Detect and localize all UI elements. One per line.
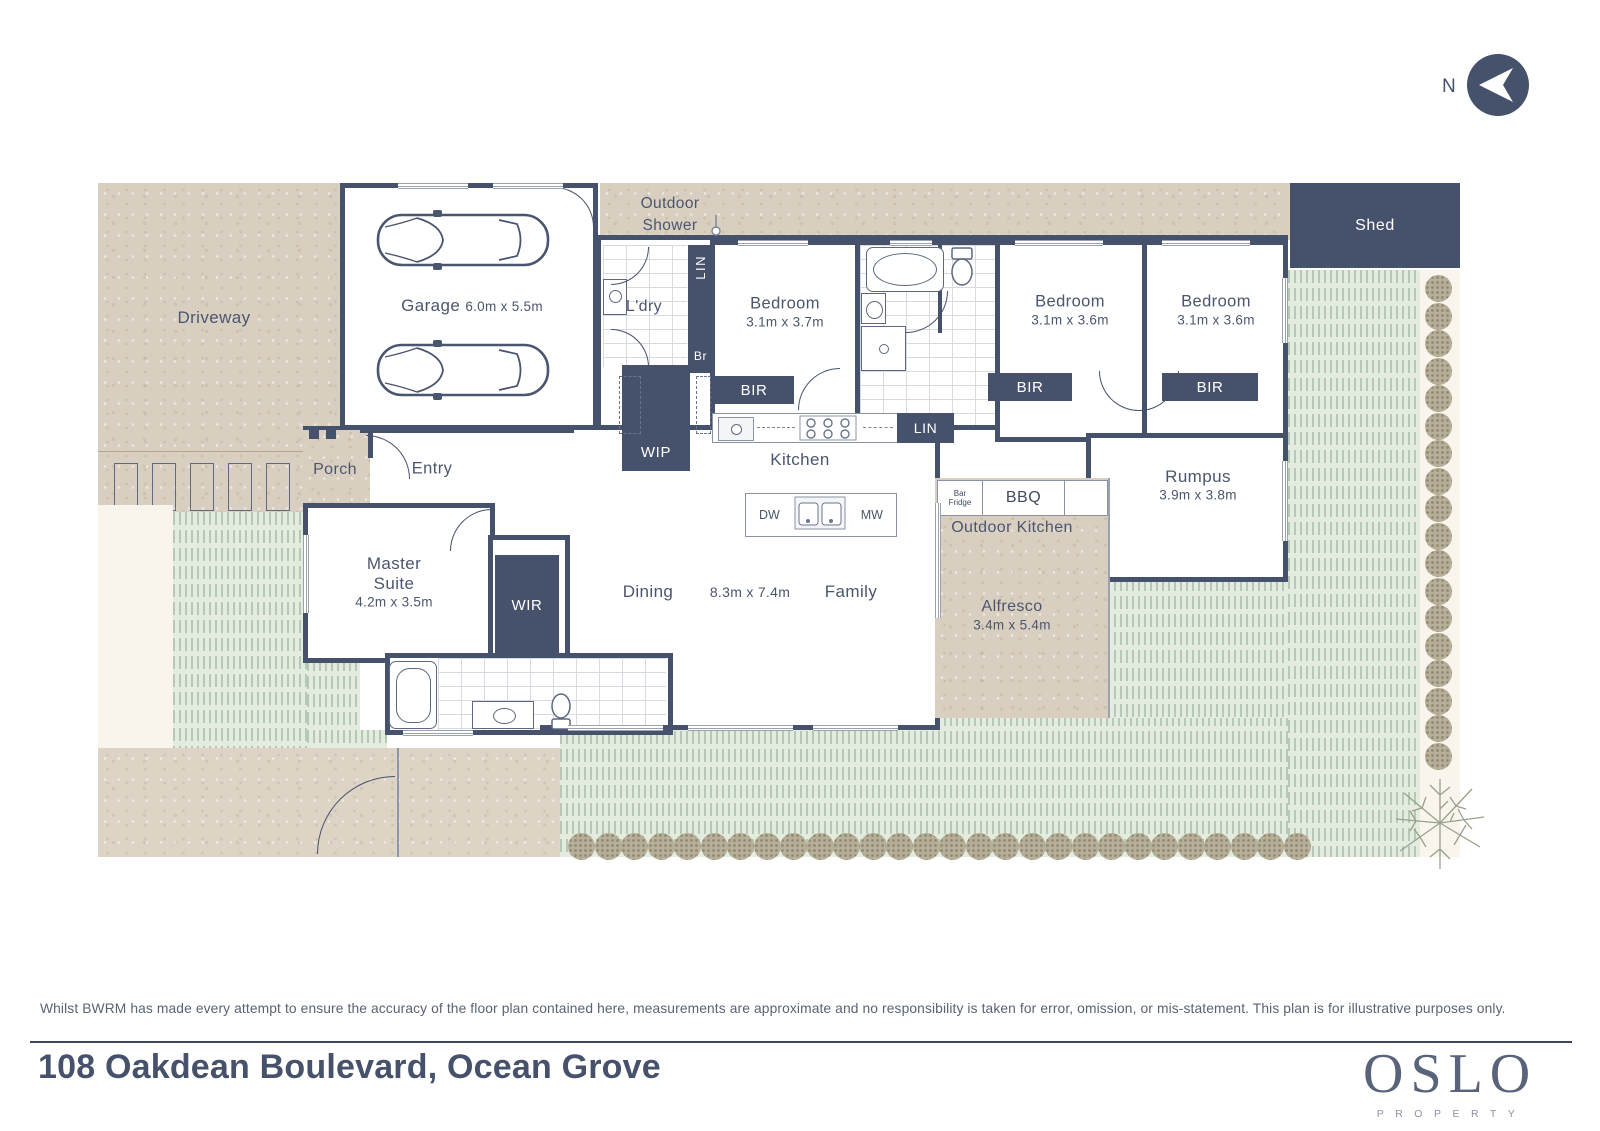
outdoor-shower-label-2: Shower [643,217,698,235]
hedge-shrub [727,833,754,860]
bedroom1-dims: 3.1m x 3.7m [746,315,824,330]
left-garden-bed [98,505,173,750]
living-dims-label: 8.3m x 7.4m [710,584,790,600]
hedge-shrub [1425,550,1452,577]
outdoor-kitchen-label: Outdoor Kitchen [951,519,1073,537]
bbq-bench: Bar Fridge BBQ [937,480,1108,516]
linen-label: LIN [693,255,708,280]
master-window [303,535,309,613]
bedroom3-dims: 3.1m x 3.6m [1177,313,1255,328]
bir1-label: BIR [741,382,768,399]
hedge-shrub [1425,330,1452,357]
entry-top-wall [360,428,574,433]
bedroom2-room [995,240,1147,442]
patio-fence-line [397,748,399,857]
garage-name: Garage [401,296,460,315]
hedge-shrub [1425,578,1452,605]
bedroom2-window [1015,240,1103,246]
footer-divider [30,1041,1572,1043]
bar-fridge-label-1: Bar [954,489,966,498]
hedge-shrub [1425,468,1452,495]
wir-label: WIR [512,597,543,614]
alfresco-label: Alfresco [982,598,1043,616]
kitchen-linen-block: LIN [897,413,954,443]
bedroom3-window [1162,240,1250,246]
garage-window-2 [493,183,563,189]
hedge-shrub [1425,633,1452,660]
porch-label: Porch [313,461,357,479]
ensuite-bath-icon [389,661,437,729]
alfresco-edge-line [1108,478,1110,718]
master-dims: 4.2m x 3.5m [355,595,433,610]
hedge-shrub [886,833,913,860]
dishwasher-label: DW [759,508,780,522]
hedge-shrub [1425,358,1452,385]
paver [152,463,176,511]
living-window-3 [813,725,898,731]
bathtub-icon [866,247,944,292]
bir3-label: BIR [1197,379,1224,396]
car-icon-bottom [375,339,551,406]
outdoor-shower-path [600,183,1290,240]
hedge-shrub [1231,833,1258,860]
hedge-shrub [1425,715,1452,742]
bir2-block: BIR [988,373,1072,401]
hedge-shrub [1425,688,1452,715]
ensuite-vanity-icon [472,701,534,729]
wir-block: WIR [495,555,559,655]
toilet-icon [947,246,977,293]
hedge-shrub [1425,495,1452,522]
kitchen-label: Kitchen [770,450,830,470]
side-yard-lawn [1108,578,1288,718]
alfresco-slider-door [935,503,941,618]
north-label: N [1442,76,1456,98]
rumpus-dims: 3.9m x 3.8m [1159,488,1237,503]
hedge-shrub [1425,660,1452,687]
outdoor-shower-label-1: Outdoor [641,195,700,213]
hedge-shrub [754,833,781,860]
hedge-shrub [1151,833,1178,860]
alfresco-dims: 3.4m x 5.4m [973,618,1051,633]
bir1-block: BIR [714,376,794,404]
garage-dims: 6.0m x 5.5m [465,299,543,314]
linen-broom-column: LIN Br [688,245,713,373]
living-window-1 [568,725,663,731]
garage-label: Garage 6.0m x 5.5m [401,296,543,316]
hedge-shrub [621,833,648,860]
kitchen-counter [712,413,898,443]
broom-label: Br [694,349,707,363]
hedge-shrub [1178,833,1205,860]
hedge-shrub [648,833,675,860]
shed-label: Shed [1355,217,1395,235]
counter-dash-2 [863,427,893,428]
hedge-shrub [860,833,887,860]
hedge-shrub [1125,833,1152,860]
shower-icon [861,326,906,371]
family-label: Family [825,582,877,602]
north-arrow-icon [1466,53,1530,117]
bathroom-window [890,240,932,246]
disclaimer-text: Whilst BWRM has made every attempt to en… [40,1001,1560,1016]
hedge-shrub [1425,413,1452,440]
hedge-shrub [833,833,860,860]
bedroom3-room [1142,240,1288,442]
rumpus-window [1282,461,1288,541]
bathroom-basin-icon [861,293,886,324]
kitchen-linen-label: LIN [914,420,938,436]
garage-window-1 [398,183,468,189]
floor-plan: Shed LIN Br WIP BIR BIR BIR WIR [98,183,1460,857]
property-address: 108 Oakdean Boulevard, Ocean Grove [38,1048,661,1087]
driveway-label: Driveway [177,308,250,328]
paver [266,463,290,511]
bedroom1-window [738,240,808,246]
hedge-shrub [1425,385,1452,412]
hedge-shrub [1072,833,1099,860]
hedge-shrub [1425,440,1452,467]
paver [228,463,252,511]
appliance-space-1 [619,376,641,434]
floor-plan-page: N [0,0,1600,1131]
entry-label: Entry [412,460,453,479]
logo-tagline: PROPERTY [1367,1108,1536,1120]
hedge-shrub [807,833,834,860]
tree-icon [1388,771,1492,880]
bbq-bench-end-cell [1064,481,1107,515]
porch-pier-2 [326,430,336,439]
paver [114,463,138,511]
bar-fridge-cell: Bar Fridge [938,481,983,515]
logo-name: OSLO [1363,1046,1536,1102]
hedge-shrub [1425,303,1452,330]
hedge-shrub [780,833,807,860]
right-lawn [1288,270,1420,857]
hedge-shrub [701,833,728,860]
rumpus-room [1086,433,1288,582]
hedge-shrub [992,833,1019,860]
car-icon-top [375,209,551,276]
hedge-shrub [1098,833,1125,860]
bar-fridge-label-2: Fridge [949,498,972,507]
appliance-space-2 [696,376,711,434]
microwave-label: MW [861,508,883,522]
kitchen-island: DW MW [745,493,897,537]
hedge-shrub [568,833,595,860]
bbq-label: BBQ [1006,489,1041,507]
bedroom1-label: Bedroom [750,295,820,314]
paver-strip [114,463,328,511]
bedroom3-label: Bedroom [1181,293,1251,312]
hedge-shrub [674,833,701,860]
master-label-1: Master [367,554,421,574]
hedge-shrub [1425,605,1452,632]
hedge-shrub [1045,833,1072,860]
hedge-shrub [595,833,622,860]
hedge-shrub [1425,743,1452,770]
bedroom2-dims: 3.1m x 3.6m [1031,313,1109,328]
master-label-2: Suite [374,574,415,594]
wip-label: WIP [641,444,671,461]
hedge-shrub [1019,833,1046,860]
hedge-shrub [1257,833,1284,860]
bbq-cell: BBQ [983,481,1064,515]
shed-block: Shed [1290,183,1460,268]
bedroom3-side-window [1282,278,1288,343]
bir2-label: BIR [1017,379,1044,396]
ensuite-window [403,730,473,736]
hedge-shrub [1284,833,1311,860]
agency-logo: OSLO PROPERTY [1356,1046,1536,1120]
outdoor-shower-icon [708,215,724,242]
island-sink-icon [794,496,846,535]
hedge-shrub [1425,523,1452,550]
dining-label: Dining [623,582,674,602]
rumpus-label: Rumpus [1165,467,1231,487]
kitchen-sink-icon [718,417,754,441]
counter-dash-1 [757,427,795,428]
bedroom2-label: Bedroom [1035,293,1105,312]
left-lawn [173,512,307,750]
cooktop-icon [799,415,857,446]
hedge-shrub [939,833,966,860]
paver [190,463,214,511]
hedge-shrub [966,833,993,860]
living-window-2 [688,725,793,731]
hedge-shrub [1204,833,1231,860]
porch-pier-1 [309,430,319,439]
hedge-shrub [1425,275,1452,302]
laundry-label: L'dry [626,298,662,316]
hedge-shrub [913,833,940,860]
